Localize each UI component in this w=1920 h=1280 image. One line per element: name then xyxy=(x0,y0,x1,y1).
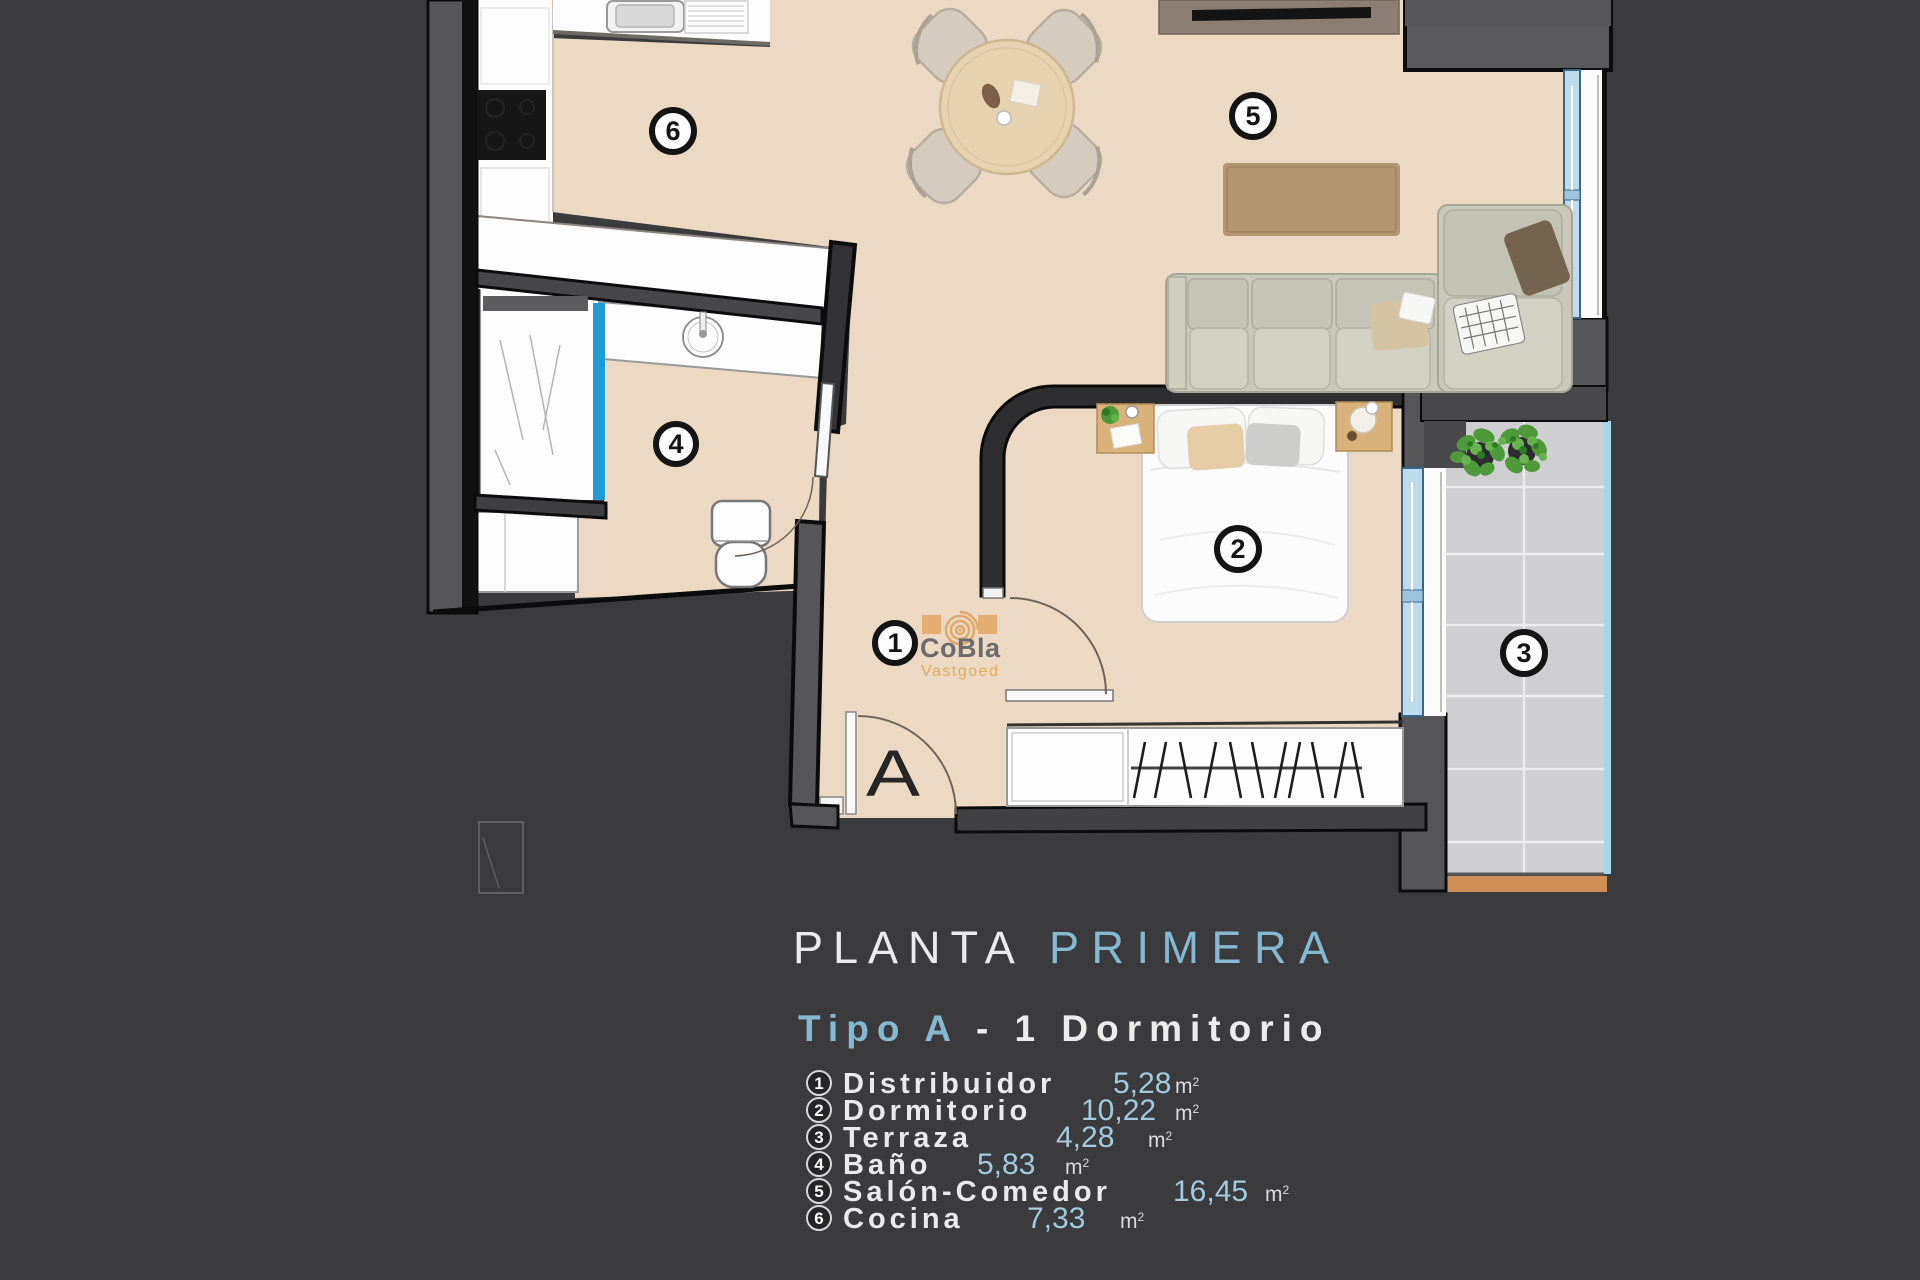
svg-text:6: 6 xyxy=(665,116,680,146)
svg-text:4,28: 4,28 xyxy=(1056,1121,1114,1154)
svg-text:CoBla: CoBla xyxy=(920,633,1001,663)
svg-text:16,45: 16,45 xyxy=(1173,1175,1248,1208)
svg-text:1: 1 xyxy=(814,1074,823,1093)
svg-text:2: 2 xyxy=(1230,534,1245,564)
svg-text:PRIMERA: PRIMERA xyxy=(1049,922,1342,973)
svg-text:PLANTA: PLANTA xyxy=(793,922,1025,973)
svg-text:Tipo A - 1 Dormitorio: Tipo A - 1 Dormitorio xyxy=(798,1008,1331,1049)
svg-text:7,33: 7,33 xyxy=(1027,1202,1085,1235)
svg-text:5,83: 5,83 xyxy=(977,1148,1035,1181)
svg-text:5: 5 xyxy=(814,1182,823,1201)
svg-text:2: 2 xyxy=(814,1101,823,1120)
svg-text:3: 3 xyxy=(814,1128,823,1147)
svg-text:5: 5 xyxy=(1245,101,1260,131)
svg-text:4: 4 xyxy=(668,429,683,459)
svg-text:Vastgoed: Vastgoed xyxy=(921,663,999,680)
svg-text:A: A xyxy=(866,736,920,810)
svg-text:Cocina: Cocina xyxy=(843,1203,964,1235)
svg-text:3: 3 xyxy=(1516,638,1531,668)
svg-text:4: 4 xyxy=(814,1155,824,1174)
svg-text:6: 6 xyxy=(814,1209,823,1228)
svg-text:1: 1 xyxy=(887,628,902,658)
